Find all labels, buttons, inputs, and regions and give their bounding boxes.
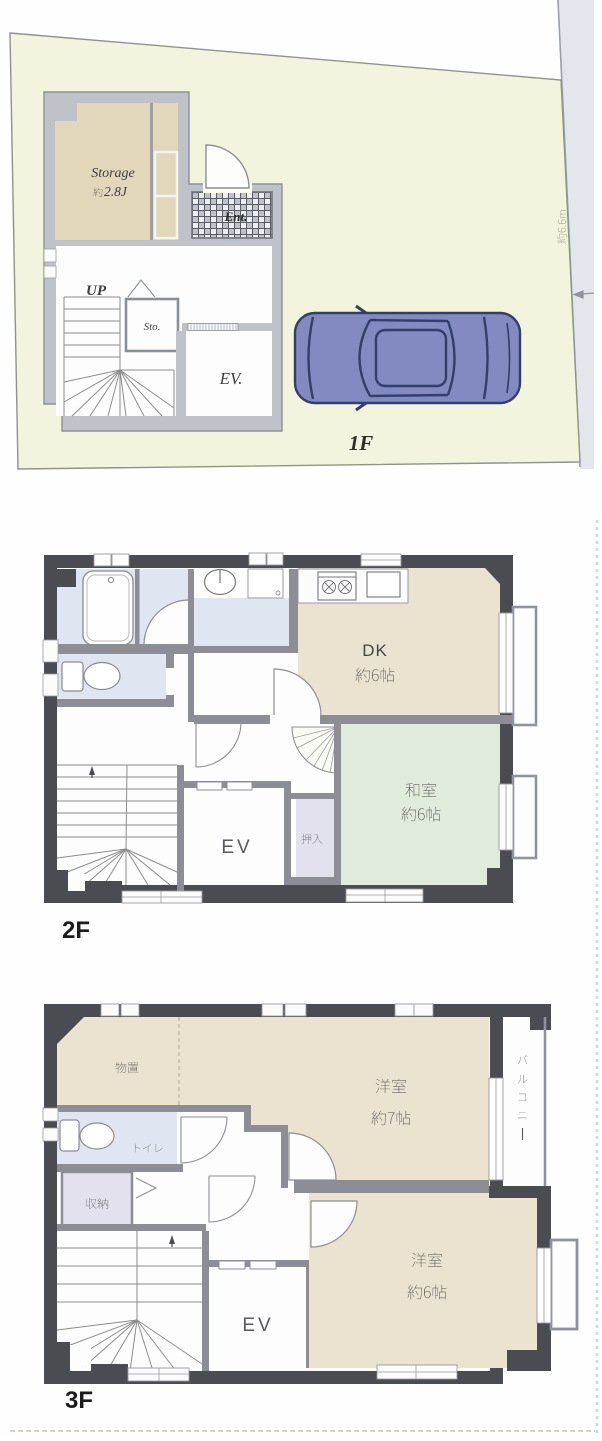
svg-text:EV: EV bbox=[221, 837, 252, 858]
svg-text:3F: 3F bbox=[65, 1387, 93, 1414]
svg-text:EV.: EV. bbox=[219, 369, 243, 388]
svg-text:Ent.: Ent. bbox=[224, 209, 248, 224]
svg-text:EV: EV bbox=[242, 1315, 273, 1336]
svg-text:Storage: Storage bbox=[91, 166, 135, 181]
svg-text:2F: 2F bbox=[62, 917, 90, 944]
svg-text:Sto.: Sto. bbox=[144, 321, 161, 333]
svg-text:DK: DK bbox=[362, 641, 388, 660]
svg-text:2.8J: 2.8J bbox=[104, 184, 128, 199]
svg-text:1F: 1F bbox=[349, 431, 374, 455]
